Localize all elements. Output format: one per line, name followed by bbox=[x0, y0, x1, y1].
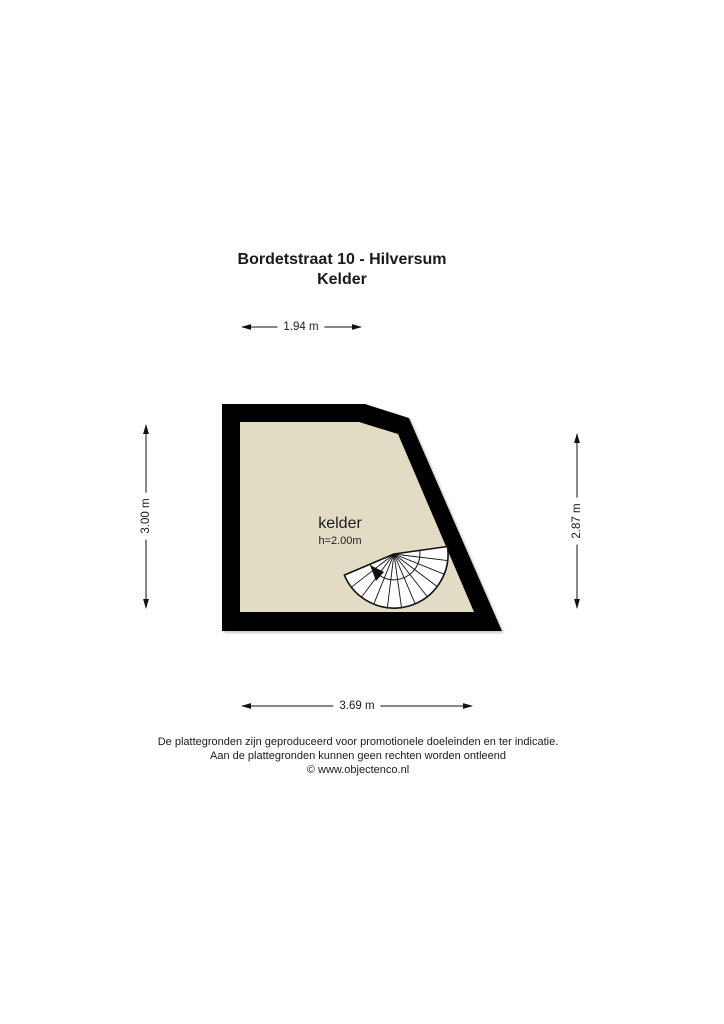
floorplan-drawing bbox=[0, 0, 724, 1024]
disclaimer-line-2: Aan de plattegronden kunnen geen rechten… bbox=[158, 749, 559, 763]
disclaimer-line-1: De plattegronden zijn geproduceerd voor … bbox=[158, 735, 559, 749]
dimension-label-bottom: 3.69 m bbox=[333, 700, 380, 712]
room-label: kelder bbox=[318, 515, 362, 533]
copyright-line: © www.objectenco.nl bbox=[158, 763, 559, 777]
room-height-label: h=2.00m bbox=[318, 535, 361, 547]
dimension-label-right: 2.87 m bbox=[571, 497, 583, 544]
footer-disclaimer: De plattegronden zijn geproduceerd voor … bbox=[158, 735, 559, 777]
dimension-label-left: 3.00 m bbox=[140, 492, 152, 539]
floorplan-page: Bordetstraat 10 - Hilversum Kelder bbox=[0, 0, 724, 1024]
dimension-label-top: 1.94 m bbox=[277, 321, 324, 333]
